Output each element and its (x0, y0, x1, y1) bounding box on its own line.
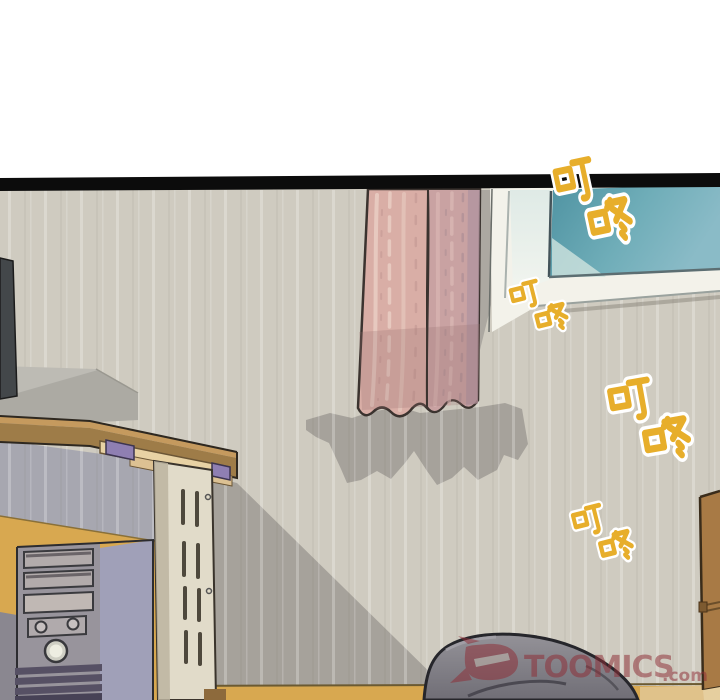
port-right (68, 619, 79, 630)
watermark-tld: .com (662, 666, 708, 686)
wardrobe-hinge (699, 602, 707, 612)
leg-foot (204, 689, 226, 700)
watermark-name: TOOMICS (524, 650, 674, 685)
window-pane-left (510, 190, 551, 293)
drive-bays (24, 549, 93, 613)
computer-tower (0, 540, 153, 700)
tower-side (100, 540, 153, 700)
curtain (358, 189, 480, 416)
port-left (36, 622, 47, 633)
panel-illustration: TOOMICS .com (0, 0, 720, 700)
webtoon-panel: TOOMICS .com (0, 0, 720, 700)
